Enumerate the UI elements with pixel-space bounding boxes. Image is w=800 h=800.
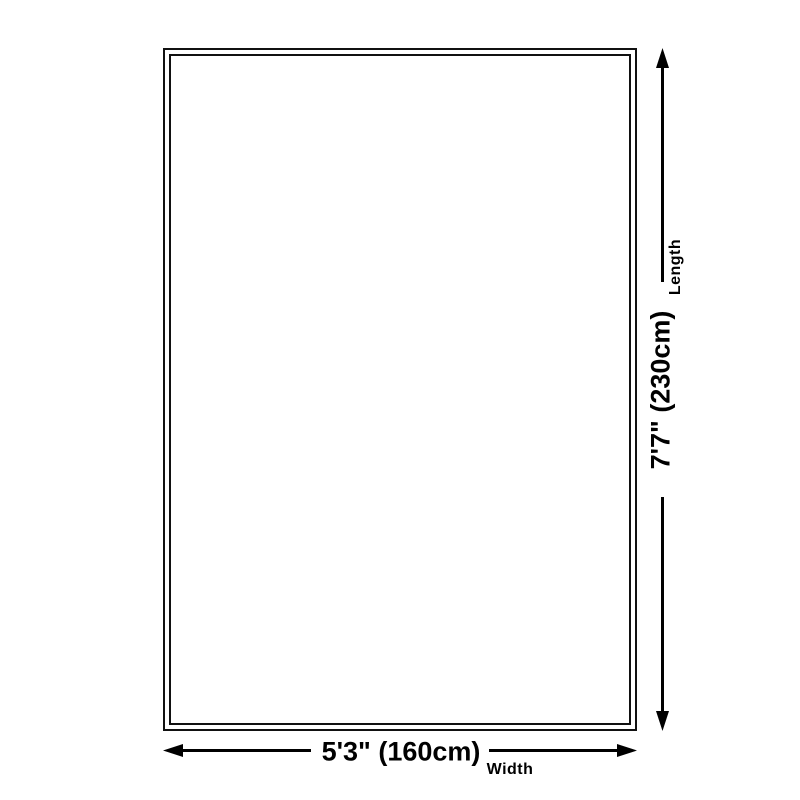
arrow-right-icon	[617, 744, 637, 757]
arrow-left-icon	[163, 744, 183, 757]
length-value: 7'7" (230cm)	[646, 311, 677, 470]
length-label: Length	[667, 239, 685, 295]
arrow-up-icon	[656, 48, 669, 68]
rug-inner-outline	[169, 54, 631, 725]
dimension-diagram: 7'7" (230cm) Length 5'3" (160cm) Width	[0, 0, 800, 800]
arrow-down-icon	[656, 711, 669, 731]
width-value: 5'3" (160cm)	[322, 737, 481, 768]
rug-outline	[163, 48, 637, 731]
width-label: Width	[487, 761, 534, 779]
